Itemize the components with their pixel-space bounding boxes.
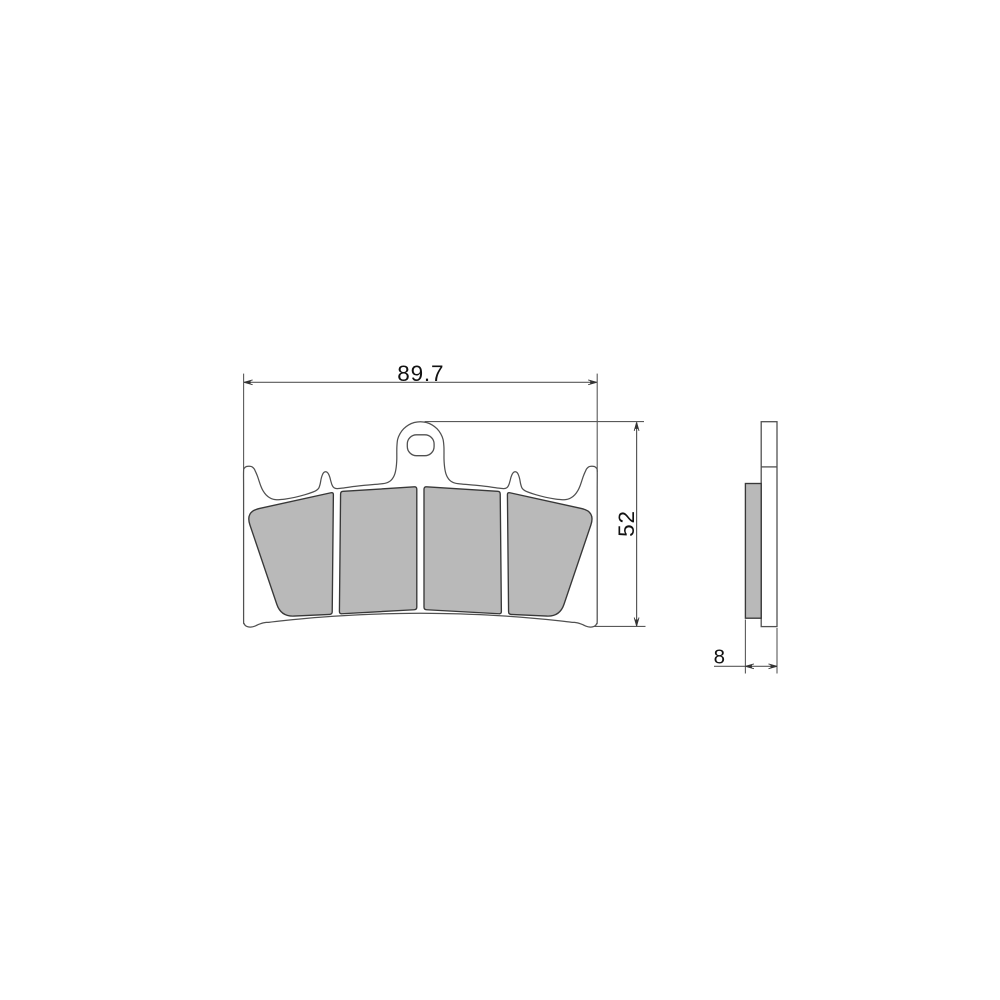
svg-text:52: 52 [614,510,639,537]
svg-text:89.7: 89.7 [397,361,444,386]
svg-text:8: 8 [714,646,725,669]
